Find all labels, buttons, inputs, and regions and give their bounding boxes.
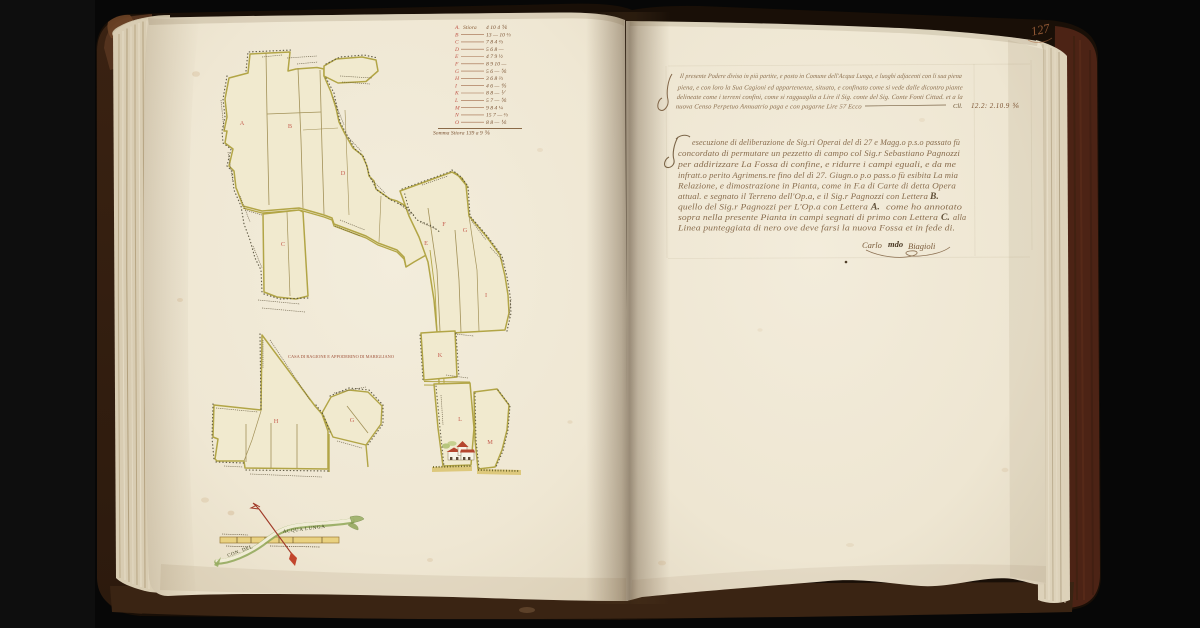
svg-text:B.: B. <box>929 192 939 202</box>
svg-text:E: E <box>454 54 459 60</box>
svg-text:quello del Sig.r Pagnozzi per: quello del Sig.r Pagnozzi per L'Op.a con… <box>678 203 868 212</box>
svg-text:5 7 — ⅚: 5 7 — ⅚ <box>486 97 507 104</box>
svg-text:K: K <box>438 352 443 359</box>
svg-text:A.: A. <box>870 203 880 213</box>
svg-text:8 8 — ⅟: 8 8 — ⅟ <box>486 90 507 97</box>
svg-text:Linea punteggiata di nero ove: Linea punteggiata di nero ove deve farsi… <box>677 224 955 233</box>
svg-text:esecuzione di deliberazione de: esecuzione di deliberazione de Sig.ri Op… <box>692 138 960 147</box>
svg-text:sopra nella presente Pianta in: sopra nella presente Pianta in campi seg… <box>678 213 938 222</box>
svg-text:piena, e con loro la Sua Cagio: piena, e con loro la Sua Cagioni ed appa… <box>676 85 963 92</box>
svg-text:CASA DI RAGIONE E APPODERINO D: CASA DI RAGIONE E APPODERINO DI MARIGLIA… <box>288 354 394 359</box>
svg-text:Carlo: Carlo <box>862 240 882 250</box>
svg-text:delineate come i terreni confi: delineate come i terreni confini, come s… <box>676 94 963 101</box>
svg-text:A: A <box>240 120 245 127</box>
svg-text:C: C <box>281 241 285 248</box>
svg-text:G: G <box>463 227 468 234</box>
svg-text:attual. e segnato il Terreno d: attual. e segnato il Terreno dell'Op.a, … <box>678 192 928 201</box>
svg-text:K: K <box>454 91 459 97</box>
svg-text:G: G <box>455 69 459 75</box>
svg-text:5 6 8 —: 5 6 8 — <box>486 47 504 53</box>
svg-text:B: B <box>288 123 292 130</box>
svg-text:Biagioli: Biagioli <box>908 241 936 251</box>
svg-text:N: N <box>454 113 459 119</box>
svg-text:Cll.: Cll. <box>953 103 963 110</box>
svg-text:12.2: 2.10.9 ⅚: 12.2: 2.10.9 ⅚ <box>971 102 1020 110</box>
svg-text:13 — 10 ⅔: 13 — 10 ⅔ <box>486 32 511 38</box>
svg-text:3 6 8 ⅔: 3 6 8 ⅔ <box>485 76 504 82</box>
svg-text:C: C <box>455 40 459 46</box>
svg-text:C.: C. <box>941 213 950 223</box>
svg-text:M: M <box>487 439 493 446</box>
svg-text:alla: alla <box>953 213 966 222</box>
svg-text:concordato di permutare un pez: concordato di permutare un pezzetto di c… <box>678 149 961 158</box>
svg-text:L: L <box>458 416 462 423</box>
svg-text:nuova Censo Perpetuo Annuatrio: nuova Censo Perpetuo Annuatrio paga e co… <box>675 104 862 111</box>
svg-text:O: O <box>455 120 459 126</box>
svg-text:B: B <box>455 32 459 38</box>
svg-text:H: H <box>274 418 279 425</box>
svg-text:E: E <box>424 240 428 247</box>
svg-text:infratt.o perito Agrimens.re f: infratt.o perito Agrimens.re fino del dì… <box>678 171 958 180</box>
svg-text:F: F <box>454 62 459 68</box>
svg-text:8 9 10 —: 8 9 10 — <box>486 62 506 68</box>
svg-text:come ho annotato: come ho annotato <box>886 203 962 212</box>
svg-text:4 6 — ⅘: 4 6 — ⅘ <box>486 82 507 89</box>
svg-text:7 8 4 ⅔: 7 8 4 ⅔ <box>486 40 504 46</box>
svg-text:5 6 — ⅚: 5 6 — ⅚ <box>486 68 507 75</box>
svg-text:mdo: mdo <box>888 239 903 249</box>
svg-text:A.: A. <box>454 25 460 31</box>
svg-text:per addirizzare La Fossa di co: per addirizzare La Fossa di confine, e r… <box>677 160 956 169</box>
svg-text:D: D <box>341 170 346 177</box>
svg-text:4 10 4 ⅚: 4 10 4 ⅚ <box>486 24 507 31</box>
svg-text:D: D <box>454 47 459 53</box>
svg-text:M: M <box>454 105 460 111</box>
svg-text:Il presente Podere diviso in p: Il presente Podere diviso in più partite… <box>679 73 963 80</box>
svg-text:L: L <box>454 98 458 104</box>
svg-text:Somma Stiora 139 a 9 ⅚: Somma Stiora 139 a 9 ⅚ <box>433 130 490 137</box>
svg-text:8 8 — ⅙: 8 8 — ⅙ <box>486 119 507 126</box>
svg-text:F: F <box>442 221 446 228</box>
svg-text:I: I <box>485 292 487 299</box>
svg-text:Stiora: Stiora <box>463 25 477 31</box>
svg-text:15 7 — ⅔: 15 7 — ⅔ <box>486 113 509 119</box>
svg-text:9 8 4 ¼: 9 8 4 ¼ <box>486 105 504 111</box>
svg-text:4 7 9 ½: 4 7 9 ½ <box>486 53 504 60</box>
svg-text:Relazione, e dimostrazione in: Relazione, e dimostrazione in Pianta, co… <box>677 182 956 191</box>
svg-text:G: G <box>350 417 355 424</box>
